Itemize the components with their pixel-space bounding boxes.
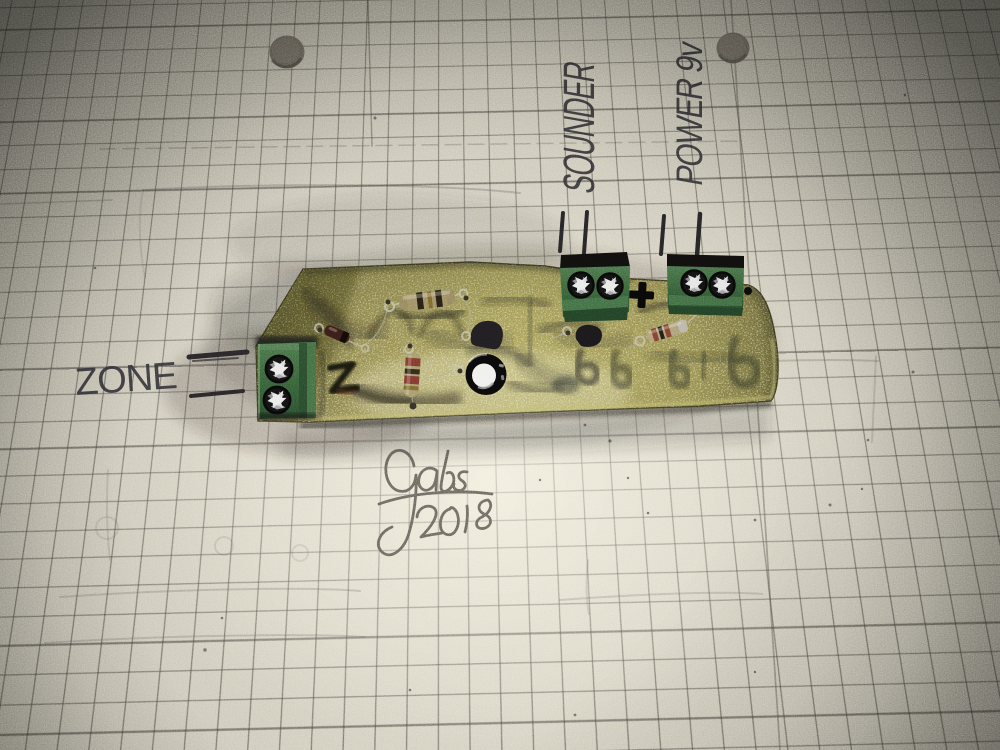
svg-text:ZONE: ZONE: [74, 355, 178, 404]
svg-text:SOUNDER: SOUNDER: [554, 58, 604, 197]
svg-text:POWER 9v: POWER 9v: [669, 38, 711, 188]
